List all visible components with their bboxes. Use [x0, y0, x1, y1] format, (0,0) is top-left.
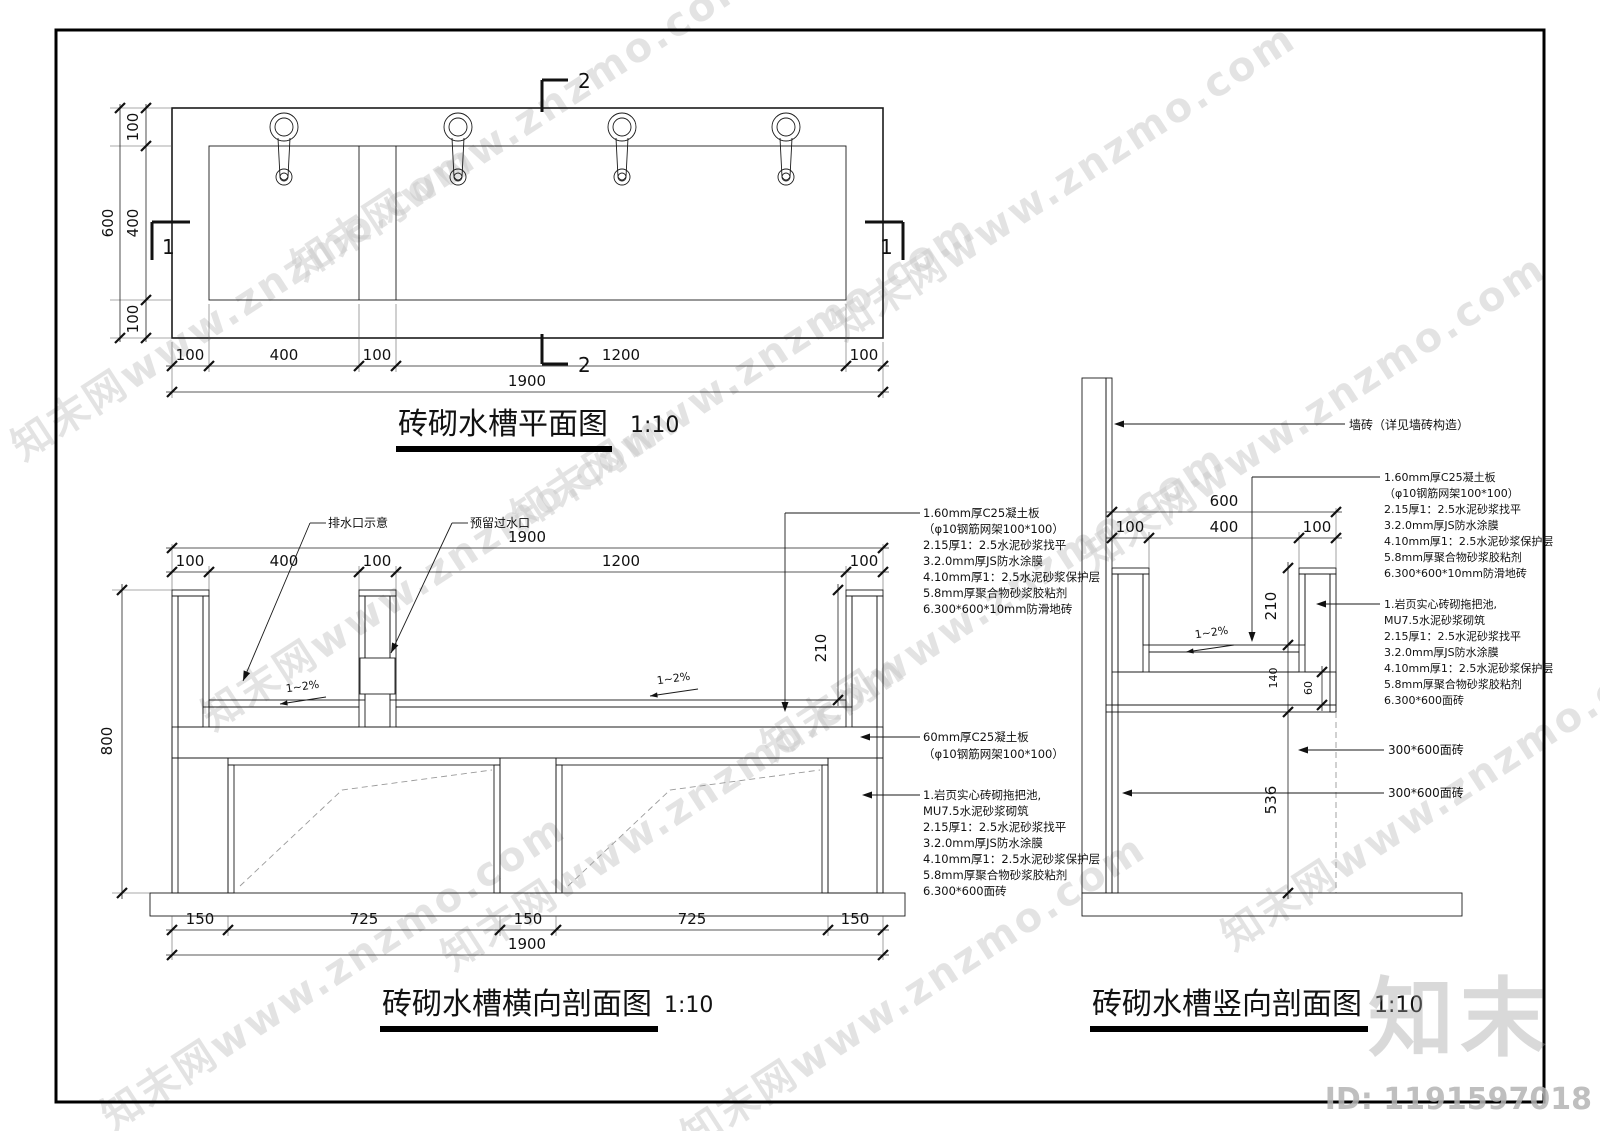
brick-leg [500, 758, 556, 893]
cross-leaders-top: 排水口示意 预留过水口 [240, 515, 530, 682]
dim-label: 1900 [508, 935, 546, 953]
brick-wall [1118, 574, 1143, 672]
void-tile-lining [556, 758, 828, 765]
wall-face-tile [1299, 574, 1305, 645]
dim-label: 800 [98, 727, 116, 756]
cross-base-structure [150, 758, 905, 916]
note-line: 4.10mm厚1：2.5水泥砂浆保护层 [1384, 661, 1553, 675]
dim-label: 150 [514, 910, 543, 928]
dim-label: 100 [1303, 518, 1332, 536]
vert-dims-top: 600 100 400 100 [1106, 492, 1342, 568]
title-underline [1090, 1026, 1368, 1032]
note-line: 1.60mm厚C25凝土板 [923, 506, 1040, 520]
cross-dims-bottom: 150 725 150 725 150 1900 [166, 910, 889, 960]
cross-title: 砖砌水槽横向剖面图 1:10 [380, 987, 713, 1032]
note-line: （φ10钢筋网架100*100） [923, 522, 1064, 536]
slope-label: 1~2% [285, 678, 320, 696]
section-mark-label: 2 [578, 353, 591, 377]
vert-dims-column: 210 140 536 60 [1262, 562, 1327, 899]
note-line: 2.15厚1：2.5水泥砂浆找平 [923, 538, 1066, 552]
dim-label: 536 [1262, 786, 1280, 815]
dim-label: 150 [186, 910, 215, 928]
cross-dim-left: 800 [98, 584, 172, 899]
dim-label: 100 [124, 113, 142, 142]
dim-label: 1900 [508, 528, 546, 546]
wall-tile-adhesive [1112, 574, 1118, 893]
section-mark-label: 1 [880, 235, 893, 259]
slope-label: 1~2% [656, 670, 691, 688]
slope-label: 1~2% [1194, 624, 1229, 642]
note-line: 6.300*600面砖 [1384, 693, 1464, 707]
plan-inner-rect [209, 146, 846, 300]
note-line: 6.300*600*10mm防滑地砖 [923, 602, 1073, 616]
vertical-section-view: 600 100 400 100 210 140 536 60 1~2% [1082, 378, 1553, 1032]
mortar-layer [209, 707, 359, 727]
leader-wall-label: 墙砖（详见墙砖构造） [1349, 417, 1469, 432]
leader-tile-label: 300*600面砖 [1388, 785, 1464, 800]
concrete-slab [172, 727, 883, 758]
cross-basin-walls [172, 590, 883, 893]
note-line: 4.10mm厚1：2.5水泥砂浆保护层 [923, 570, 1100, 584]
brick-wall [1305, 574, 1330, 672]
cross-note-base: 1.岩页实心砖砌拖把池, MU7.5水泥砂浆砌筑 2.15厚1：2.5水泥砂浆找… [862, 788, 1100, 898]
dim-label: 600 [1210, 492, 1239, 510]
dim-label: 140 [1267, 668, 1280, 689]
void-tile-lining [556, 765, 562, 893]
dim-label: 60 [1302, 681, 1315, 695]
cad-drawing: 2 2 1 1 100 400 [0, 0, 1600, 1131]
cross-note-mid: 60mm厚C25凝土板 （φ10钢筋网架100*100） [860, 730, 1064, 761]
cross-dims-top: 1900 100 400 100 1200 100 [166, 528, 889, 590]
note-line: （φ10钢筋网架100*100） [1384, 486, 1519, 500]
dim-label: 400 [270, 346, 299, 364]
section-mark-label: 2 [578, 69, 591, 93]
brick-wall [852, 596, 877, 727]
mortar-layer [396, 707, 846, 727]
note-line: 2.15厚1：2.5水泥砂浆找平 [1384, 629, 1521, 643]
note-line: 4.10mm厚1：2.5水泥砂浆保护层 [1384, 534, 1553, 548]
dim-label: 100 [850, 346, 879, 364]
dim-label: 100 [850, 552, 879, 570]
dim-label: 400 [124, 209, 142, 238]
section-mark-label: 1 [162, 235, 175, 259]
title-underline [380, 1026, 658, 1032]
note-line: （φ10钢筋网架100*100） [923, 747, 1064, 761]
note-line: 5.8mm厚聚合物砂浆胶粘剂 [1384, 677, 1522, 691]
dim-label: 725 [678, 910, 707, 928]
floor-slab [1082, 893, 1462, 916]
note-line: 4.10mm厚1：2.5水泥砂浆保护层 [923, 852, 1100, 866]
dim-label: 1200 [602, 346, 640, 364]
note-line: 3.2.0mm厚JS防水涂膜 [1384, 518, 1499, 532]
note-line: 6.300*600面砖 [923, 884, 1007, 898]
section-mark-1-left: 1 [152, 222, 190, 260]
vert-leader-tile-1: 300*600面砖 [1298, 742, 1464, 757]
plan-title: 砖砌水槽平面图 1:10 [396, 407, 679, 452]
wall-cap-tile [1299, 568, 1336, 574]
brick-wall [178, 596, 203, 727]
wall-cap-tile [172, 590, 209, 596]
note-line: 2.15厚1：2.5水泥砂浆找平 [1384, 502, 1521, 516]
void-tile-lining [494, 765, 500, 893]
dim-label: 210 [1262, 592, 1280, 621]
cross-note-top: 1.60mm厚C25凝土板 （φ10钢筋网架100*100） 2.15厚1：2.… [782, 506, 1101, 712]
leader-drain-label: 排水口示意 [328, 515, 388, 530]
brick-leg [172, 758, 228, 893]
cross-section-view: 1900 100 400 100 1200 100 [98, 506, 1100, 1032]
title-underline [396, 446, 612, 452]
note-line: 1.岩页实心砖砌拖把池, [923, 788, 1041, 802]
note-line: MU7.5水泥砂浆砌筑 [923, 804, 1029, 818]
vert-slope-mark: 1~2% [1186, 624, 1234, 655]
cross-slope-marks: 1~2% 1~2% [280, 670, 698, 707]
dim-label: 1900 [508, 372, 546, 390]
dim-label: 1200 [602, 552, 640, 570]
wall-face-tile [172, 596, 178, 893]
view-scale: 1:10 [630, 413, 679, 438]
dim-label: 100 [363, 552, 392, 570]
dim-label: 400 [1210, 518, 1239, 536]
void-dashed-line [240, 770, 492, 886]
view-title: 砖砌水槽竖向剖面图 [1092, 987, 1362, 1022]
wall-face-tile [1143, 574, 1149, 645]
dim-label: 100 [363, 346, 392, 364]
void-tile-lining [228, 758, 500, 765]
view-scale: 1:10 [664, 993, 713, 1018]
dim-label: 100 [124, 305, 142, 334]
note-line: 5.8mm厚聚合物砂浆胶粘剂 [923, 586, 1067, 600]
note-line: 1.岩页实心砖砌拖把池, [1384, 597, 1497, 611]
dim-label: 600 [99, 209, 117, 238]
note-line: 3.2.0mm厚JS防水涂膜 [923, 554, 1043, 568]
drawing-sheet: 知末网www.znzmo.com 知末网www.znzmo.com 知末网www… [0, 0, 1600, 1131]
note-line: 5.8mm厚聚合物砂浆胶粘剂 [1384, 550, 1522, 564]
leader-pass-label: 预留过水口 [470, 516, 530, 530]
note-line: 1.60mm厚C25凝土板 [1384, 470, 1496, 484]
plan-view: 2 2 1 1 100 400 [99, 69, 903, 452]
wall-face-tile [846, 596, 852, 707]
brick-leg [828, 758, 883, 893]
floor-tile-layer [396, 700, 846, 707]
vert-leader-wall: 墙砖（详见墙砖构造） [1114, 417, 1469, 432]
section-mark-1-right: 1 [865, 222, 903, 260]
cross-basin-floor [172, 700, 883, 758]
dim-label: 100 [176, 346, 205, 364]
note-line: 5.8mm厚聚合物砂浆胶粘剂 [923, 868, 1067, 882]
plan-dims-bottom: 100 400 100 1200 100 1900 [166, 304, 889, 398]
masonry-wall [1082, 378, 1106, 893]
dim-label: 100 [176, 552, 205, 570]
note-line: 6.300*600*10mm防滑地砖 [1384, 566, 1527, 580]
void-dashed-line [568, 770, 820, 886]
wall-cap-tile [846, 590, 883, 596]
dim-label: 210 [812, 634, 830, 663]
leader-tile-label: 300*600面砖 [1388, 742, 1464, 757]
section-mark-2-top: 2 [542, 69, 591, 112]
dim-label: 100 [1116, 518, 1145, 536]
water-pass-opening [360, 658, 395, 694]
note-line: MU7.5水泥砂浆砌筑 [1384, 613, 1485, 627]
wall-cap-tile [1112, 568, 1149, 574]
vert-note-base: 1.岩页实心砖砌拖把池, MU7.5水泥砂浆砌筑 2.15厚1：2.5水泥砂浆找… [1316, 597, 1553, 707]
note-line: 3.2.0mm厚JS防水涂膜 [1384, 645, 1499, 659]
void-tile-lining [228, 765, 234, 893]
note-line: 2.15厚1：2.5水泥砂浆找平 [923, 820, 1066, 834]
note-line: 3.2.0mm厚JS防水涂膜 [923, 836, 1043, 850]
dim-label: 150 [841, 910, 870, 928]
watermark-logo: 知末 [1368, 948, 1552, 1073]
soffit-tile-layer [1106, 705, 1336, 712]
wall-tile-layer [1106, 378, 1112, 893]
wall-face-tile [203, 596, 209, 707]
section-mark-2-bottom: 2 [542, 334, 591, 377]
wall-face-tile [1330, 574, 1336, 712]
dim-label: 725 [350, 910, 379, 928]
cross-dim-depth: 210 [812, 584, 843, 706]
note-line: 60mm厚C25凝土板 [923, 730, 1029, 744]
watermark-id: ID: 1191597018 [1325, 1082, 1592, 1117]
view-title: 砖砌水槽横向剖面图 [382, 987, 652, 1022]
void-tile-lining [822, 765, 828, 893]
vert-leader-tile-2: 300*600面砖 [1122, 785, 1464, 800]
wall-face-tile [877, 596, 883, 893]
wall-cap-tile [359, 590, 396, 596]
view-title: 砖砌水槽平面图 [398, 407, 608, 442]
faucet-icon [270, 113, 800, 185]
